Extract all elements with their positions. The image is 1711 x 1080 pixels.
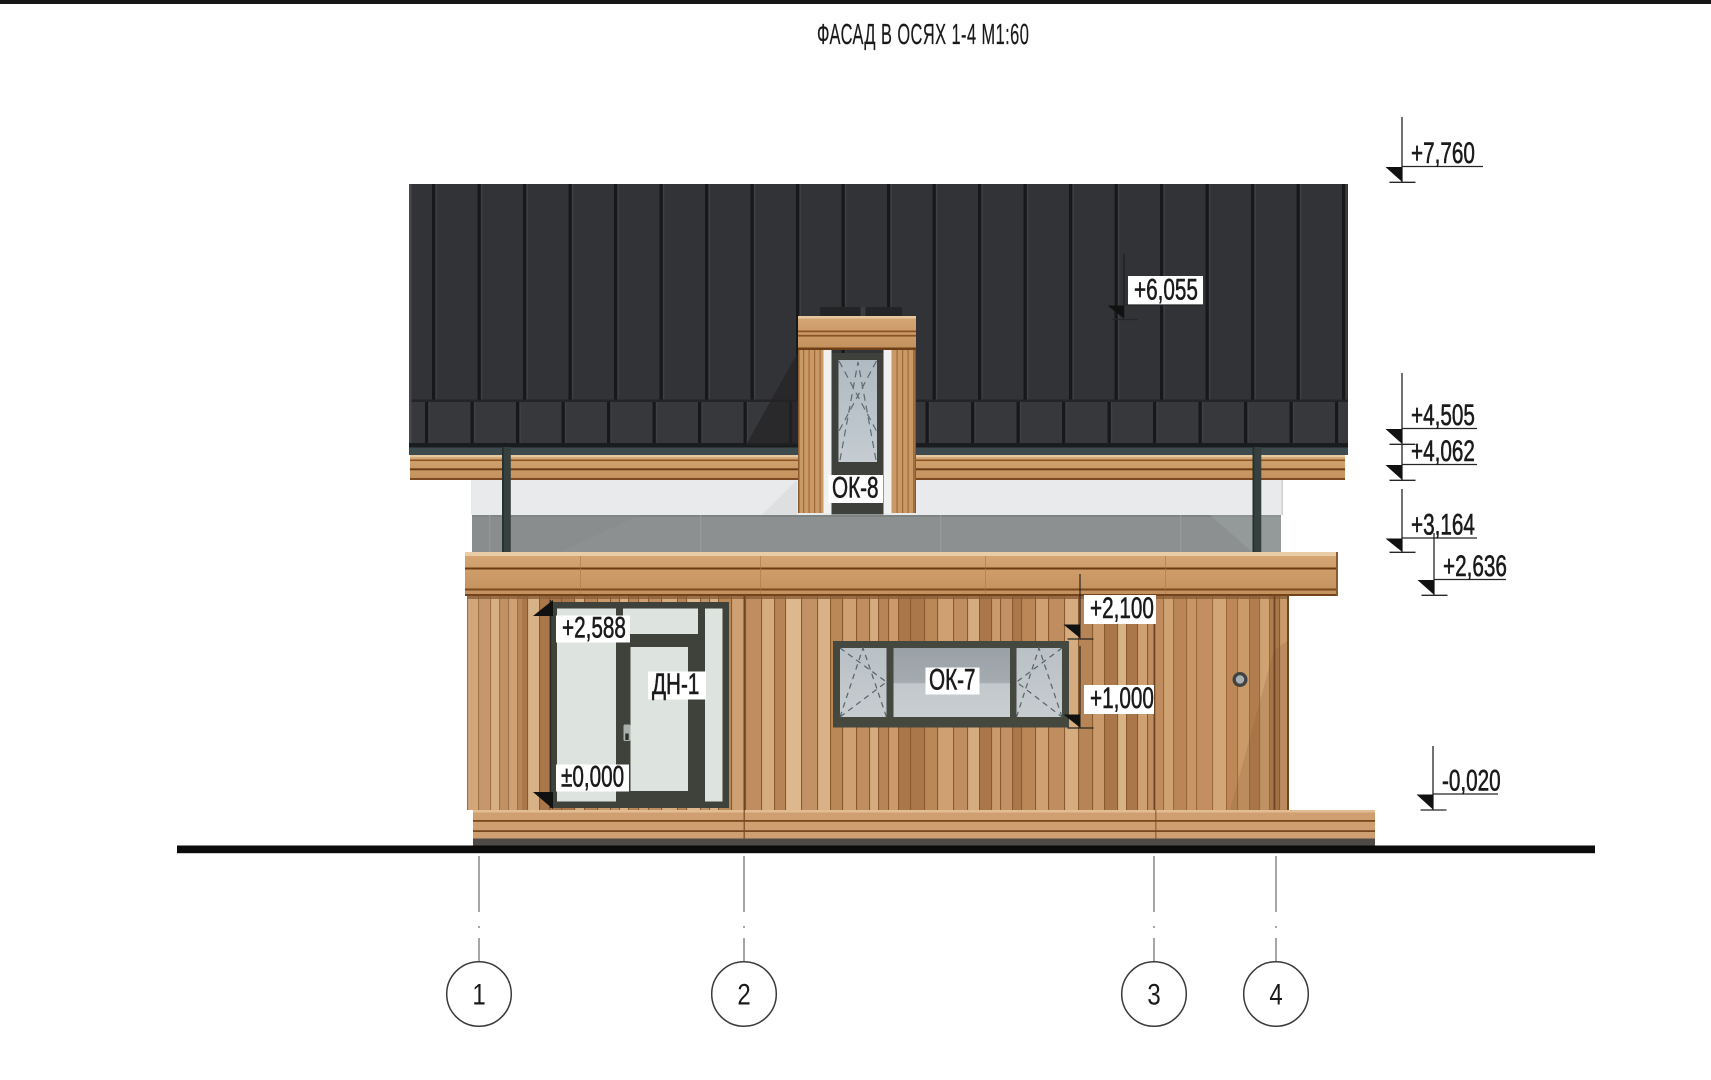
svg-text:+2,100: +2,100 [1090,592,1154,625]
svg-text:1: 1 [472,977,485,1011]
svg-text:+1,000: +1,000 [1090,682,1154,715]
svg-text:ОК-7: ОК-7 [929,664,976,697]
svg-text:+2,588: +2,588 [562,612,626,645]
svg-text:2: 2 [737,977,750,1011]
svg-text:+3,164: +3,164 [1411,509,1475,542]
svg-text:±0,000: ±0,000 [561,761,624,794]
svg-text:3: 3 [1147,977,1160,1011]
svg-text:+4,062: +4,062 [1411,435,1475,468]
svg-text:+6,055: +6,055 [1134,274,1198,307]
svg-text:ОК-8: ОК-8 [832,472,879,505]
svg-text:+4,505: +4,505 [1411,399,1475,432]
svg-text:-0,020: -0,020 [1442,765,1501,798]
svg-text:+2,636: +2,636 [1443,550,1507,583]
svg-text:+7,760: +7,760 [1411,137,1475,170]
svg-text:4: 4 [1269,977,1282,1011]
svg-text:ДН-1: ДН-1 [652,668,699,701]
svg-text:ФАСАД В ОСЯХ 1-4 М1:60: ФАСАД В ОСЯХ 1-4 М1:60 [817,18,1029,50]
